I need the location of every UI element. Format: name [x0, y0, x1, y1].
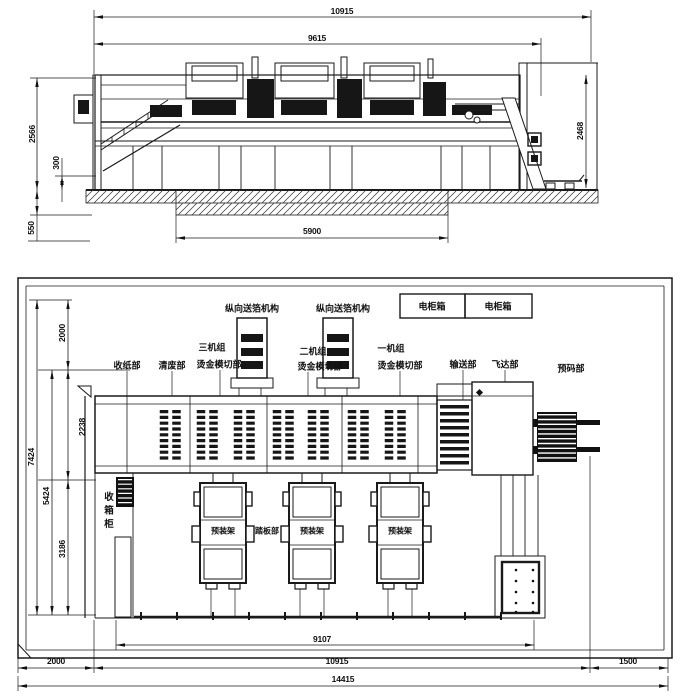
roller-icon [465, 111, 473, 119]
dim-pit-depth: 550 [26, 221, 36, 235]
side-tower-unit3 [186, 63, 243, 98]
label-foil-feed-2: 纵向送箔机构 [316, 302, 370, 315]
label-foil-feed-1: 纵向送箔机构 [225, 302, 279, 315]
dim-pit-length: 5900 [303, 226, 321, 236]
plan-machine-body [78, 386, 437, 473]
label-unit2-stamping: 烫金模切部 [297, 360, 342, 373]
dim-body-length: 9615 [308, 33, 326, 43]
label-prefit-rack-1: 预装架 [211, 526, 235, 537]
dim-footprint-length: 9107 [313, 634, 331, 644]
dim-right-height: 2468 [575, 122, 585, 140]
label-prefit-rack-2: 预装架 [300, 526, 324, 537]
side-tower-unit1 [364, 63, 420, 98]
dim-layout-width: 7424 [26, 448, 36, 466]
label-prestack: 预码部 [557, 362, 584, 375]
dim-machine-width: 5424 [41, 487, 51, 505]
label-unit3-stamping: 烫金模切部 [196, 358, 241, 371]
operator-console [74, 95, 93, 123]
feeder-section [472, 382, 533, 475]
label-conveyor: 输送部 [449, 358, 476, 371]
dim-base-height: 300 [51, 156, 61, 170]
dim-right-clearance: 1500 [619, 656, 637, 666]
label-footboard: 踏板部 [255, 526, 279, 537]
conveyor-bridge [437, 384, 472, 396]
label-delivery: 收纸部 [113, 359, 140, 372]
label-unit1: 一机组 [377, 342, 404, 355]
side-tower-unit2 [275, 63, 334, 98]
label-electric-cabinet-2: 电柜箱 [484, 300, 511, 313]
label-feeder: 飞达部 [491, 358, 518, 371]
label-electric-cabinet-1: 电柜箱 [418, 300, 445, 313]
side-elevation [74, 57, 598, 215]
label-unit3: 三机组 [198, 341, 225, 354]
dim-left-height: 2566 [27, 125, 37, 143]
dim-left-clearance: 2000 [47, 656, 65, 666]
label-unit1-stamping: 烫金模切部 [377, 359, 422, 372]
dim-machine-length: 10915 [326, 656, 349, 666]
dim-overall-length: 10915 [331, 6, 354, 16]
dim-top-clearance: 2000 [57, 324, 67, 342]
prestack-comb [533, 412, 600, 462]
dim-front-width: 3186 [57, 540, 67, 558]
roller-icon [474, 117, 480, 123]
pallet-position-box [495, 556, 545, 618]
label-carton-cabinet: 收箱柜 [100, 492, 114, 533]
pallet-jack [544, 175, 584, 189]
label-prefit-rack-3: 预装架 [388, 526, 412, 537]
feeder-legs [501, 475, 538, 556]
machine-installation-drawing: 10915 9615 5900 2566 300 550 2468 7424 5… [0, 0, 690, 697]
drawing-canvas [0, 0, 690, 697]
dim-body-width: 2238 [77, 418, 87, 436]
label-unit2: 二机组 [299, 345, 326, 358]
feeder-hopper-plate [502, 98, 546, 189]
dim-room-length: 14415 [332, 674, 355, 684]
label-waste-removal: 清废部 [158, 359, 185, 372]
